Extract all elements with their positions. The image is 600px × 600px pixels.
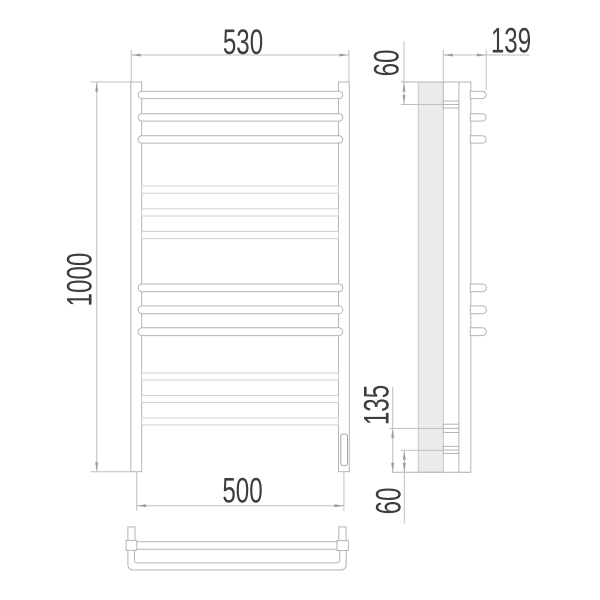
svg-text:60: 60 (368, 50, 406, 77)
svg-text:500: 500 (222, 472, 262, 510)
svg-text:60: 60 (370, 488, 408, 515)
svg-text:139: 139 (491, 22, 531, 60)
svg-text:1000: 1000 (61, 253, 99, 307)
svg-text:135: 135 (358, 385, 396, 425)
svg-text:530: 530 (223, 24, 263, 62)
